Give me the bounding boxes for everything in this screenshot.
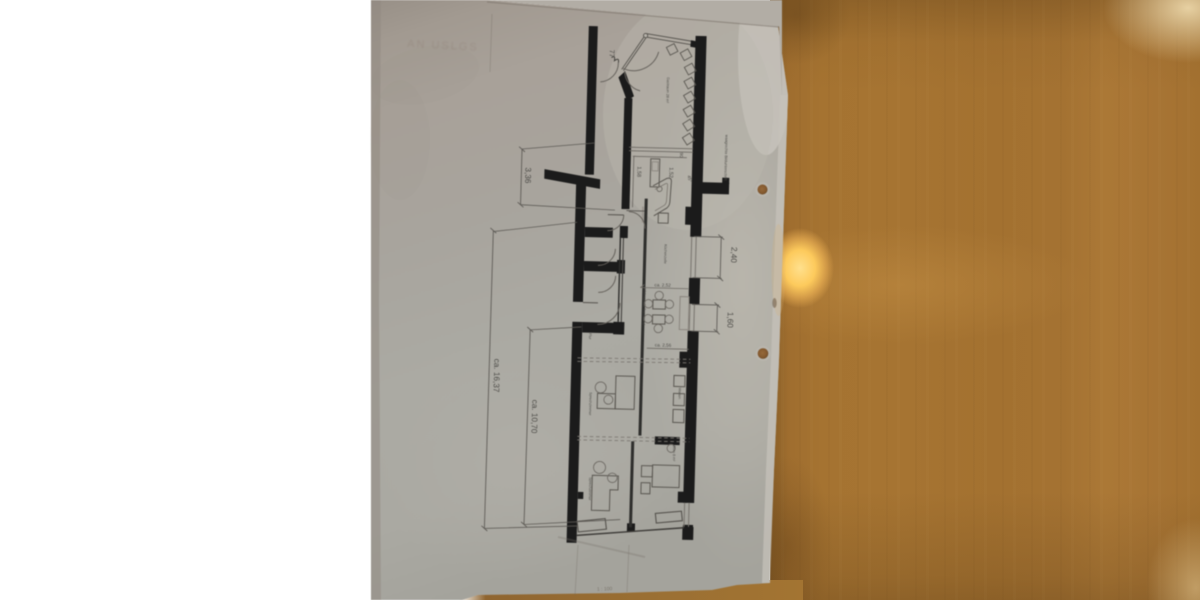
svg-text:90: 90 [679,152,684,158]
svg-text:ca. 2,56: ca. 2,56 [655,342,672,347]
svg-text:ca. 16,37: ca. 16,37 [492,359,502,393]
svg-text:ca. 10,70: ca. 10,70 [529,400,539,434]
svg-text:1,60: 1,60 [725,312,734,329]
svg-text:1 : 100: 1 : 100 [597,586,613,593]
svg-text:ca. 2,52: ca. 2,52 [654,282,671,287]
svg-text:Flur: Flur [588,333,592,340]
svg-text:Gastraum 28 m²: Gastraum 28 m² [665,77,670,104]
svg-text:2,40: 2,40 [729,247,738,264]
svg-text:1,52: 1,52 [667,167,673,178]
svg-text:Sprechzimmer: Sprechzimmer [588,477,593,501]
svg-text:3,36: 3,36 [523,167,532,184]
svg-text:1,58: 1,58 [635,166,641,177]
svg-text:Büro 8 m²: Büro 8 m² [672,445,676,462]
svg-text:Warten: Warten [677,388,681,400]
svg-text:Küchenzeile: Küchenzeile [663,244,668,264]
svg-text:Sprechzimmer: Sprechzimmer [588,392,593,416]
svg-text:77: 77 [608,50,615,58]
